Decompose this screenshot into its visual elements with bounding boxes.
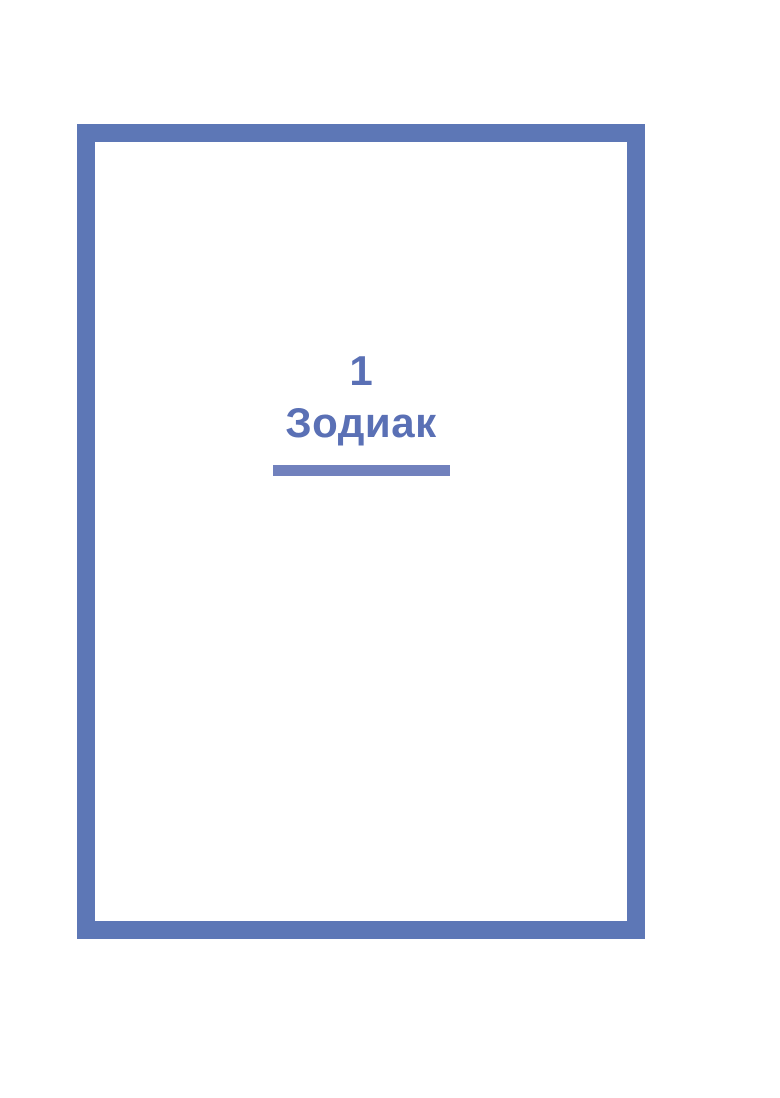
document-page: 1 Зодиак bbox=[0, 0, 780, 1098]
chapter-rule-divider bbox=[273, 465, 450, 476]
chapter-title: Зодиак bbox=[285, 397, 436, 449]
chapter-number: 1 bbox=[349, 347, 372, 395]
chapter-frame: 1 Зодиак bbox=[77, 124, 645, 939]
chapter-heading: 1 Зодиак bbox=[95, 347, 627, 476]
